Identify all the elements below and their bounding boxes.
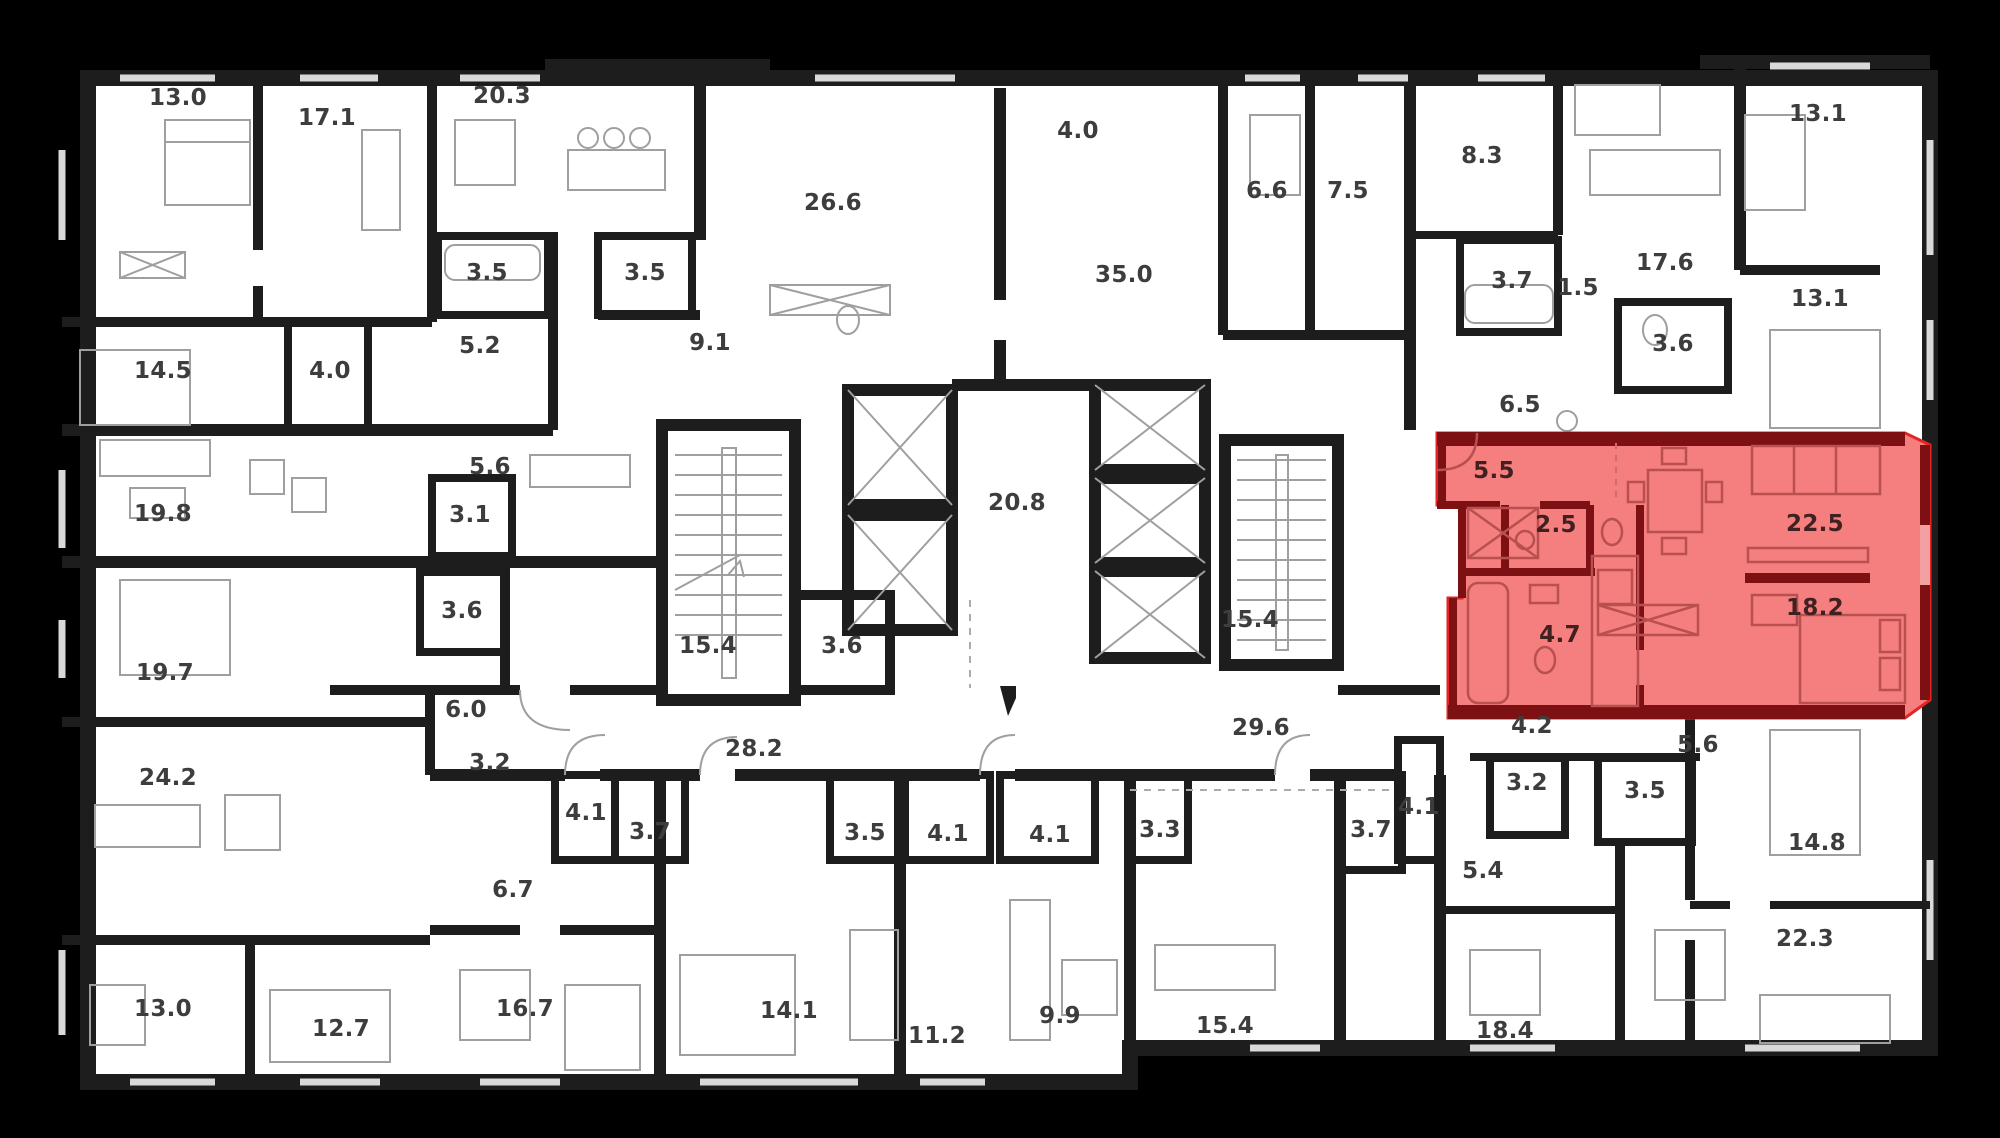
room-area-label: 3.7 xyxy=(1491,268,1533,294)
room-area-label: 13.1 xyxy=(1789,101,1847,127)
room-area-label: 22.5 xyxy=(1786,511,1844,537)
room-area-label: 5.5 xyxy=(1473,458,1515,484)
room-area-label: 6.0 xyxy=(445,697,487,723)
room-area-label: 4.1 xyxy=(1029,822,1071,848)
room-area-label: 3.6 xyxy=(441,598,483,624)
room-area-label: 17.1 xyxy=(298,105,356,131)
room-area-label: 28.2 xyxy=(725,736,783,762)
room-area-label: 5.6 xyxy=(1677,732,1719,758)
room-area-label: 20.3 xyxy=(473,83,531,109)
room-area-label: 3.6 xyxy=(821,633,863,659)
room-area-label: 15.4 xyxy=(1221,607,1279,633)
room-area-label: 19.8 xyxy=(134,501,192,527)
room-area-label: 8.3 xyxy=(1461,143,1503,169)
room-area-label: 18.4 xyxy=(1476,1018,1534,1044)
room-area-label: 35.0 xyxy=(1095,262,1153,288)
room-area-label: 3.6 xyxy=(1652,331,1694,357)
room-area-label: 3.5 xyxy=(844,820,886,846)
room-area-label: 4.1 xyxy=(1398,794,1440,820)
room-area-label: 3.5 xyxy=(1624,778,1666,804)
room-area-label: 4.1 xyxy=(565,800,607,826)
room-area-label: 3.3 xyxy=(1139,817,1181,843)
room-area-label: 4.7 xyxy=(1539,622,1581,648)
room-area-label: 19.7 xyxy=(136,660,194,686)
room-area-label: 9.1 xyxy=(689,330,731,356)
room-area-label: 3.7 xyxy=(1350,817,1392,843)
room-area-label: 6.5 xyxy=(1499,392,1541,418)
room-area-label: 3.2 xyxy=(1506,770,1548,796)
room-area-label: 14.1 xyxy=(760,998,818,1024)
room-area-label: 5.6 xyxy=(469,454,511,480)
room-area-label: 12.7 xyxy=(312,1016,370,1042)
room-area-label: 5.2 xyxy=(459,333,501,359)
room-area-label: 20.8 xyxy=(988,490,1046,516)
room-area-label: 6.6 xyxy=(1246,178,1288,204)
room-area-label: 17.6 xyxy=(1636,250,1694,276)
room-area-label: 9.9 xyxy=(1039,1003,1081,1029)
room-area-label: 3.2 xyxy=(469,750,511,776)
room-area-label: 3.5 xyxy=(624,260,666,286)
room-area-label: 2.5 xyxy=(1535,512,1577,538)
room-area-label: 5.4 xyxy=(1462,858,1504,884)
room-area-label: 4.0 xyxy=(1057,118,1099,144)
room-area-label: 4.1 xyxy=(927,821,969,847)
room-area-label: 13.0 xyxy=(149,85,207,111)
room-area-label: 3.1 xyxy=(449,502,491,528)
room-area-label: 14.5 xyxy=(134,358,192,384)
room-area-label: 13.1 xyxy=(1791,286,1849,312)
room-area-label: 6.7 xyxy=(492,877,534,903)
room-area-label: 11.2 xyxy=(908,1023,966,1049)
floor-plan: 13.017.120.326.64.06.67.58.313.13.53.53.… xyxy=(0,0,2000,1138)
room-area-label: 26.6 xyxy=(804,190,862,216)
floor-plan-canvas: 13.017.120.326.64.06.67.58.313.13.53.53.… xyxy=(0,0,2000,1138)
room-area-label: 3.5 xyxy=(466,260,508,286)
room-area-label: 4.2 xyxy=(1511,713,1553,739)
room-area-label: 15.4 xyxy=(679,633,737,659)
room-area-label: 29.6 xyxy=(1232,715,1290,741)
room-area-label: 4.0 xyxy=(309,358,351,384)
room-area-label: 24.2 xyxy=(139,765,197,791)
room-area-label: 15.4 xyxy=(1196,1013,1254,1039)
room-area-label: 3.7 xyxy=(629,819,671,845)
room-area-label: 22.3 xyxy=(1776,926,1834,952)
room-area-label: 18.2 xyxy=(1786,595,1844,621)
room-area-label: 7.5 xyxy=(1327,178,1369,204)
room-area-label: 13.0 xyxy=(134,996,192,1022)
room-area-label: 1.5 xyxy=(1557,275,1599,301)
room-area-label: 14.8 xyxy=(1788,830,1846,856)
room-area-label: 16.7 xyxy=(496,996,554,1022)
